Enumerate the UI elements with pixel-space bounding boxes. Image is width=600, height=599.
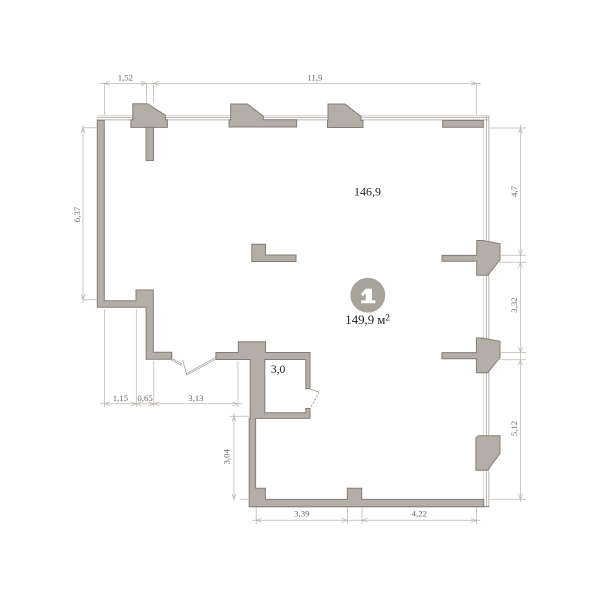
svg-text:146,9: 146,9 <box>354 184 381 198</box>
svg-text:1,15: 1,15 <box>113 393 129 403</box>
svg-text:6,37: 6,37 <box>72 206 82 222</box>
svg-text:4,7: 4,7 <box>509 185 519 197</box>
svg-text:4,22: 4,22 <box>412 509 427 519</box>
svg-text:3,04: 3,04 <box>222 449 232 465</box>
svg-text:3,13: 3,13 <box>188 393 204 403</box>
svg-text:0,65: 0,65 <box>137 393 153 403</box>
svg-text:3,39: 3,39 <box>294 509 310 519</box>
svg-text:149,9 м2: 149,9 м2 <box>345 313 390 328</box>
svg-text:3,0: 3,0 <box>271 364 286 376</box>
svg-text:11,9: 11,9 <box>307 73 323 83</box>
svg-text:5,12: 5,12 <box>509 421 519 436</box>
svg-text:3,32: 3,32 <box>509 297 519 312</box>
svg-text:1,52: 1,52 <box>118 73 133 83</box>
